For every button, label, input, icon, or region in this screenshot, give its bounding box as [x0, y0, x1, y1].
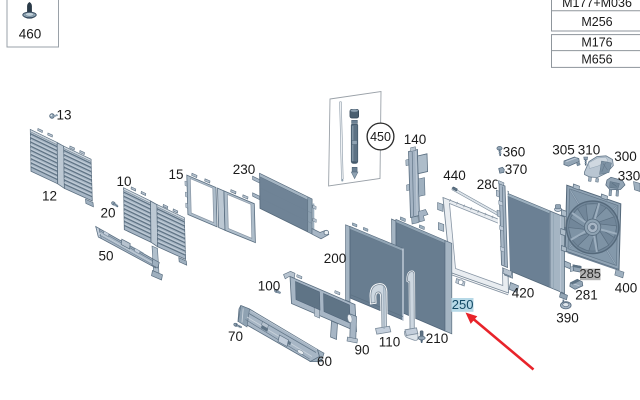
- svg-text:M176: M176: [581, 36, 612, 50]
- svg-text:420: 420: [512, 286, 535, 301]
- svg-text:60: 60: [317, 354, 332, 369]
- svg-text:360: 360: [503, 145, 526, 160]
- svg-text:M656: M656: [581, 53, 612, 67]
- svg-text:10: 10: [116, 174, 131, 189]
- svg-text:330: 330: [618, 169, 640, 184]
- svg-text:70: 70: [228, 329, 243, 344]
- svg-text:305: 305: [552, 142, 575, 157]
- svg-text:200: 200: [324, 251, 347, 266]
- svg-text:250: 250: [452, 297, 474, 312]
- svg-text:20: 20: [100, 206, 115, 221]
- svg-text:460: 460: [19, 27, 42, 42]
- svg-text:100: 100: [258, 279, 281, 294]
- svg-text:450: 450: [370, 130, 391, 144]
- svg-text:400: 400: [615, 281, 638, 296]
- svg-text:285: 285: [579, 266, 601, 281]
- svg-text:280: 280: [477, 177, 500, 192]
- svg-text:390: 390: [556, 311, 579, 326]
- svg-text:15: 15: [168, 167, 183, 182]
- svg-text:12: 12: [42, 189, 57, 204]
- svg-text:M177+M036: M177+M036: [562, 0, 632, 10]
- svg-text:440: 440: [443, 168, 466, 183]
- svg-text:140: 140: [404, 132, 427, 147]
- svg-text:110: 110: [379, 335, 401, 350]
- svg-text:M256: M256: [581, 15, 612, 29]
- svg-text:281: 281: [575, 288, 598, 303]
- svg-text:90: 90: [354, 343, 369, 358]
- svg-text:370: 370: [505, 162, 528, 177]
- svg-text:13: 13: [56, 108, 71, 123]
- svg-text:50: 50: [98, 249, 113, 264]
- svg-text:230: 230: [233, 162, 256, 177]
- svg-text:310: 310: [578, 142, 601, 157]
- svg-text:210: 210: [426, 331, 449, 346]
- svg-text:300: 300: [614, 149, 637, 164]
